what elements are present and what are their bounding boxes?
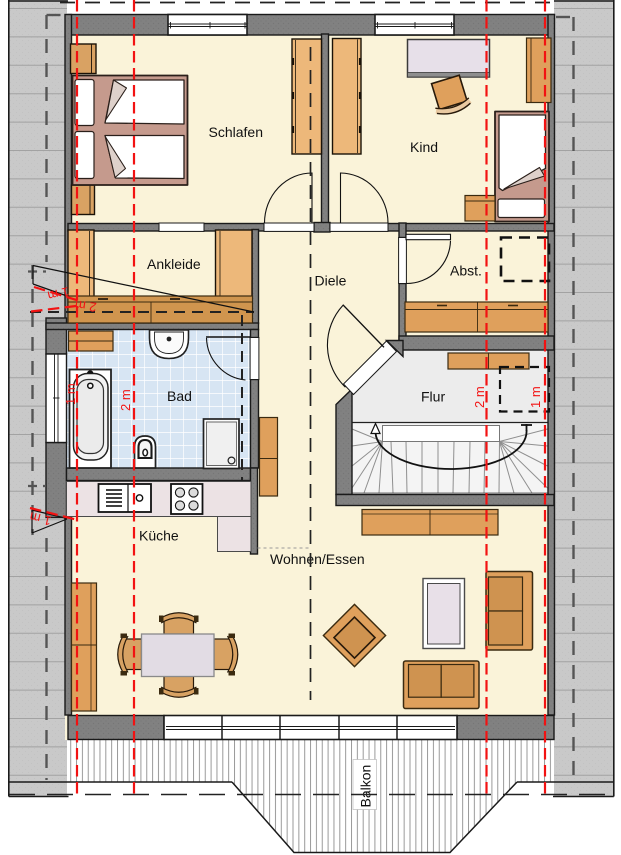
svg-text:Kind: Kind [410,139,438,155]
svg-text:1 m: 1 m [63,383,78,405]
svg-text:Balkon: Balkon [358,765,374,808]
svg-text:Diele: Diele [315,273,347,289]
svg-text:Ankleide: Ankleide [147,256,201,272]
svg-text:2 m: 2 m [472,386,487,408]
svg-text:2 m: 2 m [118,389,133,411]
svg-text:Wohnen/Essen: Wohnen/Essen [270,551,365,567]
svg-text:Schlafen: Schlafen [209,124,263,140]
svg-text:Flur: Flur [421,389,445,405]
svg-text:1 m: 1 m [528,386,543,408]
svg-text:Bad: Bad [167,388,192,404]
svg-text:Abst.: Abst. [450,263,482,279]
svg-text:2 m: 2 m [74,297,97,315]
svg-text:Küche: Küche [139,528,179,544]
